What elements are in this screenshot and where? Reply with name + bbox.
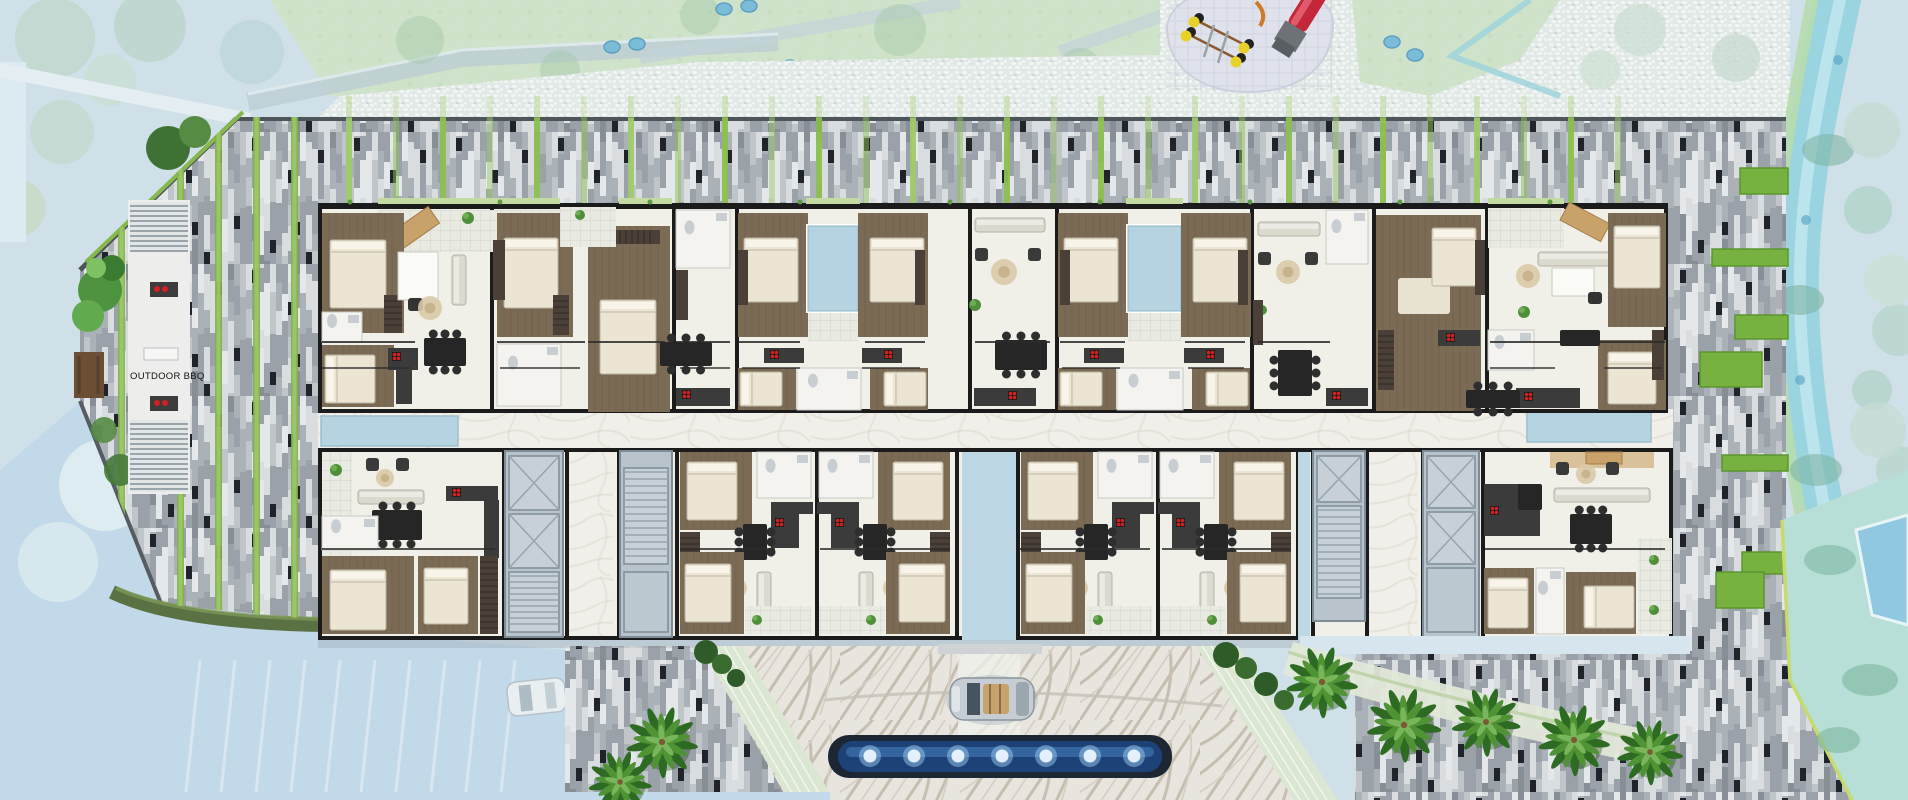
svg-text:OUTDOOR BBQ: OUTDOOR BBQ: [130, 371, 205, 382]
